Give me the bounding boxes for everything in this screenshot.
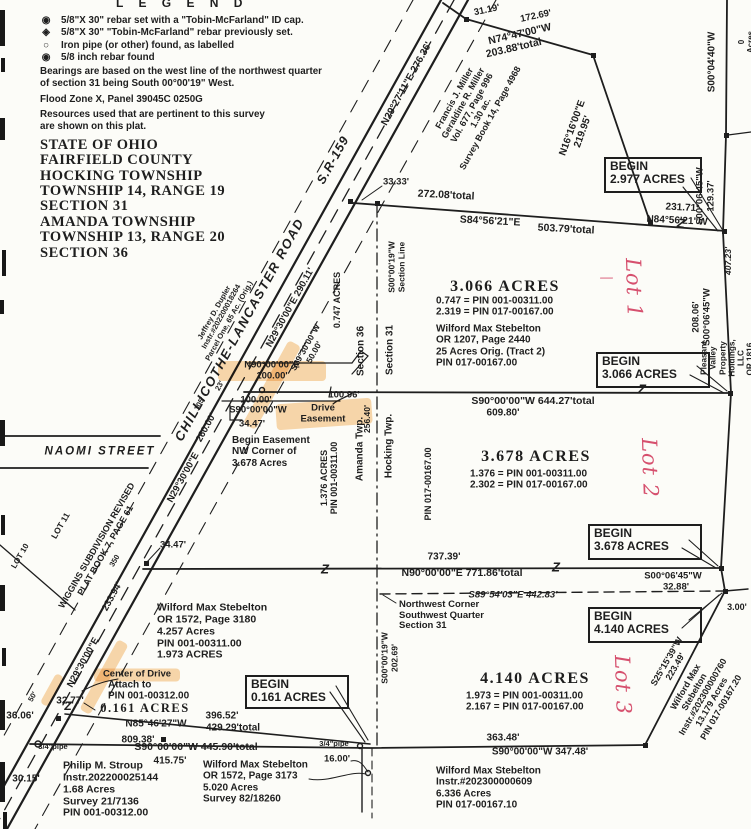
legend-title: L E G E N D (116, 0, 248, 10)
legend-item: ◉ 5/8 inch rebar found (40, 52, 304, 63)
distance-label: 33.33' (383, 178, 409, 189)
bearing-label: N90°00'00"E 771.86'total (402, 568, 523, 580)
distance-label: 396.52' (206, 710, 239, 721)
rebar-found-icon: ◉ (40, 52, 52, 63)
begin-box: BEGIN3.678 ACRES (588, 524, 702, 560)
survey-plat: 31.19'172.69'N74°47'00"W203.88'totalN29°… (0, 0, 751, 829)
bearings-note: Bearings are based on the west line of t… (40, 66, 322, 90)
distance-label: 415.75' (154, 755, 187, 766)
drive-note: Attach to PIN 001-00312.00 (108, 680, 189, 703)
parcel-acreage: 3.678 ACRES (481, 448, 591, 466)
line-break-symbol: Z (64, 700, 71, 714)
begin-box: BEGIN0.161 ACRES (245, 675, 349, 709)
rebar-set-icon: ◉ (40, 15, 52, 26)
bearing-label: S00°04'40"W (706, 32, 717, 93)
distance-label: 30.15' (12, 773, 39, 784)
owner-parcel-block: Wilford Max Stebelton OR 1572, Page 3180… (157, 602, 267, 661)
flood-zone-note: Flood Zone X, Panel 39045C 0250G (40, 94, 203, 105)
lot-annotation-red: Lot 1 (620, 258, 646, 319)
begin-box: BEGIN4.140 ACRES (588, 607, 702, 643)
pin-equation: 1.376 = PIN 001-00311.00 2.302 = PIN 017… (470, 469, 588, 492)
section-label: Section 31 (384, 325, 395, 375)
distance-label: 32.88' (663, 583, 689, 594)
owner-parcel-block: Wilford Max Stebelton OR 1572, Page 3173… (203, 759, 308, 804)
lot-annotation-red: — (600, 271, 615, 287)
distance-label: 16.00' (324, 755, 350, 766)
distance-label: 737.39' (428, 551, 461, 562)
distance-label: 34.47' (160, 541, 186, 552)
acreage-label: 0.747 ACRES (332, 272, 342, 328)
begin-box: BEGIN3.066 ACRES (596, 352, 710, 388)
owner-parcel-block: Wilford Max Stebelton Instr.#20230000060… (436, 765, 541, 810)
distance-label: 36.06' (6, 710, 33, 721)
township-label: Hocking Twp. (383, 414, 394, 478)
legend: ◉ 5/8"X 30" rebar set with a "Tobin-McFa… (40, 15, 304, 64)
jurisdiction-title-block: STATE OF OHIO FAIRFIELD COUNTY HOCKING T… (40, 138, 225, 261)
rebar-previous-icon: ◈ (40, 27, 52, 38)
distance-label: 407.23' (724, 247, 734, 275)
pin-equation: 0.747 = PIN 001-00311.00 2.319 = PIN 017… (436, 296, 554, 319)
resources-note: Resources used that are pertinent to thi… (40, 109, 265, 133)
street-name: NAOMI STREET (45, 446, 156, 459)
legend-item: ○ Iron pipe (or other) found, as labelle… (40, 40, 304, 51)
section-label: Section 36 (355, 326, 366, 376)
distance-label: 256.40' (363, 405, 373, 433)
pipe-label: 3/4"pipe (38, 743, 67, 751)
legend-item: ◈ 5/8"X 30" "Tobin-McFarland" rebar prev… (40, 27, 304, 38)
begin-box-acres: 3.678 ACRES (594, 540, 696, 553)
section-line-label: S00°00'19"W Section Line (387, 241, 406, 293)
distance-label: 609.80' (487, 407, 520, 418)
begin-box-acres: 2.977 ACRES (610, 173, 696, 186)
iron-pipe-icon: ○ (40, 40, 52, 51)
lot-annotation-red: Lot 2 (636, 438, 662, 499)
distance-label: 3.00' (727, 602, 747, 612)
bearing-label: 208.06' S00°06'45"W (691, 288, 712, 346)
bearing-label: S90°00'00"W 644.27'total (471, 396, 594, 408)
line-break-symbol: Z (321, 563, 329, 578)
distance-label: 34.47' (239, 420, 265, 431)
easement-label: Drive Easement (301, 403, 346, 424)
begin-box: BEGIN2.977 ACRES (604, 157, 702, 193)
legend-item: ◉ 5/8"X 30" rebar set with a "Tobin-McFa… (40, 15, 304, 26)
acreage-label: 1.376 ACRES PIN 001-00311.00 (319, 442, 339, 515)
begin-box-acres: 0.161 ACRES (251, 691, 343, 704)
partial-label: 0 Acres (737, 31, 751, 53)
bearing-label: N85°46'27"W (125, 718, 186, 729)
begin-box-acres: 4.140 ACRES (594, 623, 696, 636)
parcel-acreage: 4.140 ACRES (480, 670, 590, 688)
pipe-label: 3/4"pipe (319, 740, 348, 748)
bearing-label: S90°00'00"W 347.48' (492, 746, 588, 757)
distance-label: 100.96' (328, 391, 359, 402)
begin-easement-note: Begin Easement NW Corner of 3.678 Acres (232, 435, 310, 469)
legend-item-text: 5/8"X 30" rebar set with a "Tobin-McFarl… (61, 15, 304, 26)
legend-item-text: 5/8"X 30" "Tobin-McFarland" rebar previo… (61, 27, 293, 38)
distance-label: 429.29'total (206, 722, 260, 733)
legend-item-text: Iron pipe (or other) found, as labelled (61, 40, 234, 51)
begin-box-acres: 3.066 ACRES (602, 368, 704, 381)
owner-parcel-block: Philip M. Stroup Instr.202200025144 1.68… (63, 760, 158, 819)
corner-note: Northwest Corner Southwest Quarter Secti… (399, 600, 484, 632)
bearing-label: S90°00'00"W (229, 406, 287, 417)
pin-equation: 1.973 = PIN 001-00311.00 2.167 = PIN 017… (466, 691, 584, 714)
legend-item-text: 5/8 inch rebar found (61, 52, 155, 63)
bearing-label: S90°00'00"W 445.90'total (134, 742, 257, 754)
section-line-label: S00°00'19"W 202.69' (380, 632, 399, 684)
lot-annotation-red: Lot 3 (609, 655, 635, 716)
distance-label: 363.48' (487, 732, 520, 743)
line-break-symbol: Z (552, 561, 560, 576)
owner-parcel-block: Wilford Max Stebelton OR 1207, Page 2440… (436, 323, 545, 368)
parcel-acreage: 0.161 ACRES (100, 701, 189, 715)
pin-label: PIN 017-00167.00 (423, 447, 433, 520)
parcel-acreage: 3.066 ACRES (450, 278, 560, 296)
